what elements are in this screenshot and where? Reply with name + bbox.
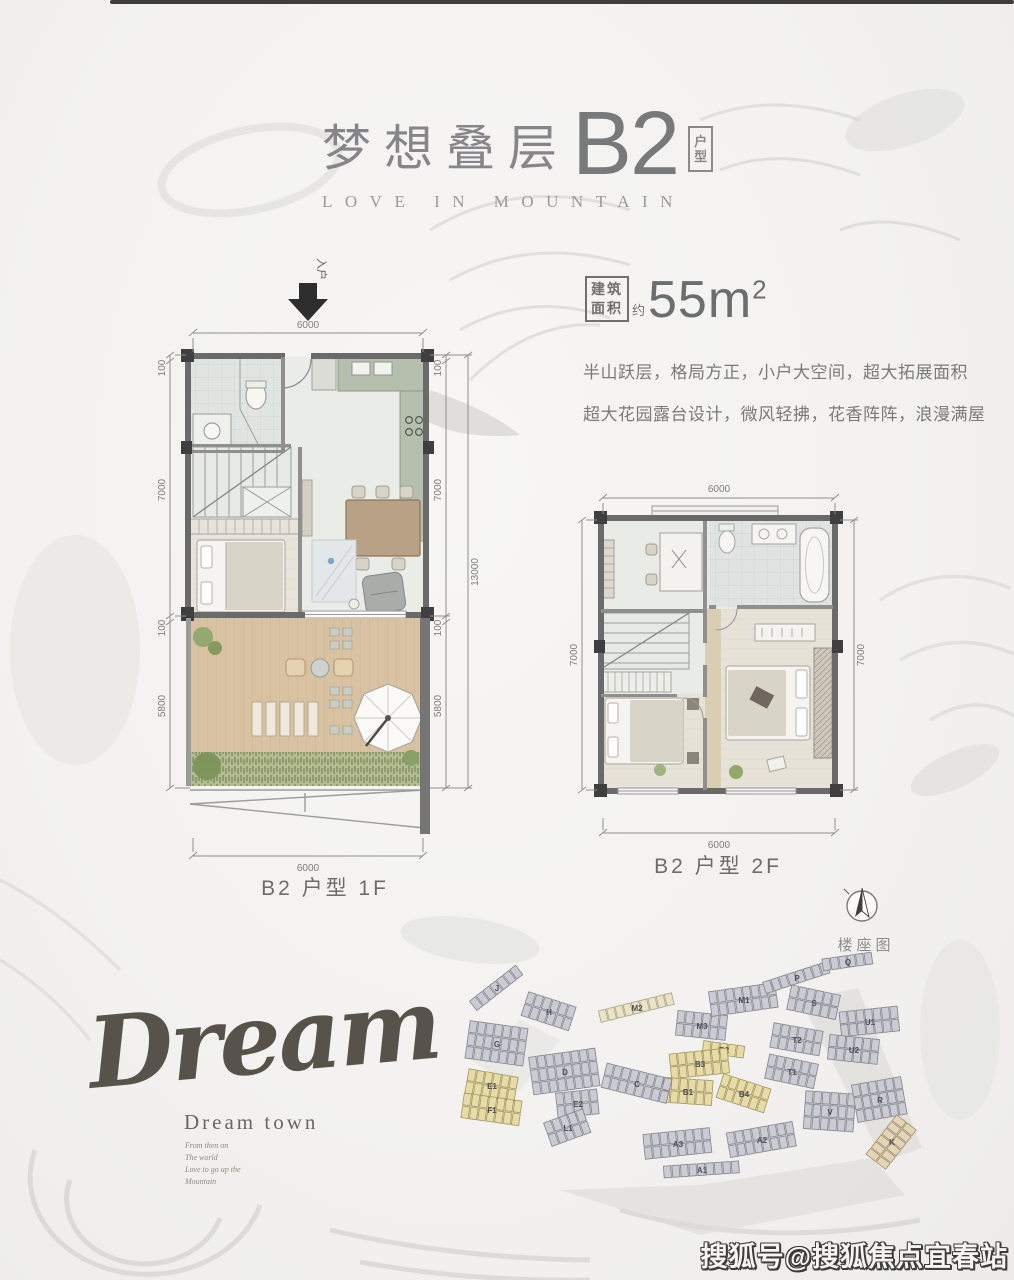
floorplan-2f: 6000 6000 7000 7000 [569,484,867,851]
plan1-dim-r1: 100 [433,359,444,376]
page-title: 梦想叠层 [322,125,570,182]
siteplan-cluster-B3: B3 [669,1048,730,1079]
siteplan-cluster-label: A3 [673,1140,684,1149]
siteplan-cluster-label: L1 [563,1124,573,1133]
plan1-dim-r3: 100 [433,619,444,636]
siteplan-cluster-label: A1 [697,1166,708,1175]
siteplan-cluster-label: E1 [487,1082,497,1091]
plan2-label: B2 户型 2F [598,850,838,880]
siteplan-cluster-A2: A2 [726,1122,796,1158]
siteplan-cluster-label: A2 [757,1136,768,1145]
siteplan-cluster-label: F1 [487,1106,497,1115]
area-value: 55m2 [648,278,768,322]
plan2-dim-left: 7000 [569,643,580,666]
poster-page: 入户 [0,0,1014,1280]
siteplan-cluster-J: J [470,965,523,1010]
siteplan-cluster-label: B1 [683,1088,694,1097]
siteplan-cluster-label: U2 [849,1046,860,1055]
compass-icon [844,888,877,921]
plan2-dim-right: 7000 [856,643,867,666]
plan1-dim-overall: 13000 [470,558,481,586]
siteplan-cluster-label: T1 [787,1068,797,1077]
siteplan-cluster-label: U1 [865,1018,876,1027]
subtitle: LOVE IN MOUNTAIN [322,192,722,212]
siteplan-cluster-M3: M3 [675,1010,727,1040]
siteplan-cluster-label: E2 [573,1100,583,1109]
siteplan-cluster-label: M2 [631,1004,643,1013]
siteplan-cluster-S: S [787,985,841,1020]
plan1-dim-top: 6000 [297,320,320,331]
floorplan-1f: 入户 [157,258,481,874]
siteplan-cluster-label: M1 [738,996,750,1005]
description-line2: 超大花园露台设计，微风轻拂，花香阵阵，浪漫满屋 [583,394,986,436]
area-box-line2: 面积 [591,299,623,318]
siteplan-cluster-label: K [889,1138,895,1147]
umbrella-icon [354,684,422,752]
siteplan-cluster-label: S [811,999,817,1008]
plan1-dim-l2: 7000 [157,478,168,501]
siteplan-cluster-label: M3 [696,1022,708,1031]
siteplan-cluster-M2: M2 [598,993,674,1024]
plan1-label: B2 户型 1F [150,872,500,902]
siteplan-cluster-A3: A3 [643,1128,712,1160]
siteplan-cluster-label: D [562,1068,568,1077]
siteplan-cluster-L1: L1 [544,1109,591,1146]
unit-code: B2 [572,108,678,182]
siteplan-cluster-G: G [465,1021,528,1067]
description: 半山跃层，格局方正，小户大空间，超大拓展面积 超大花园露台设计，微风轻拂，花香阵… [583,352,986,436]
siteplan-cluster-V: V [803,1091,855,1132]
dream-script-text: Dream [84,978,411,1104]
siteplan-cluster-T1: T1 [765,1054,819,1089]
siteplan-cluster-R: R [852,1077,908,1123]
siteplan-cluster-label: J [495,984,499,993]
dream-town-text: Dream town [184,1110,318,1135]
description-line1: 半山跃层，格局方正，小户大空间，超大拓展面积 [583,352,986,394]
siteplan-cluster-label: G [494,1040,500,1049]
area-sup: 2 [752,274,767,304]
plan1-dim-r2: 7000 [433,478,444,501]
watermark: 搜狐号@搜狐焦点宜春站 [701,1235,1008,1274]
siteplan-cluster-B4: B4 [716,1074,771,1113]
siteplan-cluster-label: B3 [695,1060,706,1069]
dream-tagline: From then on The world Love to go up the… [185,1140,241,1188]
header: 梦想叠层 B2 户 型 LOVE IN MOUNTAIN [322,108,722,212]
entry-label: 入户 [315,258,329,280]
area-box: 建筑 面积 [585,276,629,322]
plan1-dim-l1: 100 [157,359,168,376]
area-approx: 约 [632,300,645,319]
plan1-dim-l4: 5800 [157,694,168,717]
siteplan-cluster-label: R [877,1096,883,1105]
siteplan-cluster-label: C [634,1080,640,1089]
plan1-dim-l3: 100 [157,619,168,636]
unit-tag-char2: 型 [694,149,707,164]
unit-tag: 户 型 [688,126,713,172]
siteplan-cluster-label: Q [845,958,851,967]
area-box-line1: 建筑 [591,280,623,299]
plan2-dim-top: 6000 [708,484,731,495]
unit-tag-char1: 户 [694,134,707,149]
entry-arrow-icon: 入户 [288,258,329,321]
dream-logo: Dream Dream town From then on The world … [88,992,408,1090]
siteplan-cluster-C: C [601,1063,672,1103]
plan1-dim-r4: 5800 [433,694,444,717]
siteplan-cluster-label: V [827,1108,833,1117]
siteplan-cluster-label: H [546,1008,552,1017]
siteplan-cluster-label: P [794,974,800,983]
siteplan-cluster-label: B4 [739,1090,750,1099]
area-badge: 建筑 面积 约 55m2 [585,276,768,322]
compass-label: 楼座图 [826,934,906,955]
siteplan: JHGM2M3M1PQST2T1U1U2VRKB2B3B1B4CDE1F1E2L… [461,952,922,1235]
siteplan-cluster-label: T2 [792,1036,802,1045]
siteplan-cluster-A1: A1 [663,1161,739,1178]
